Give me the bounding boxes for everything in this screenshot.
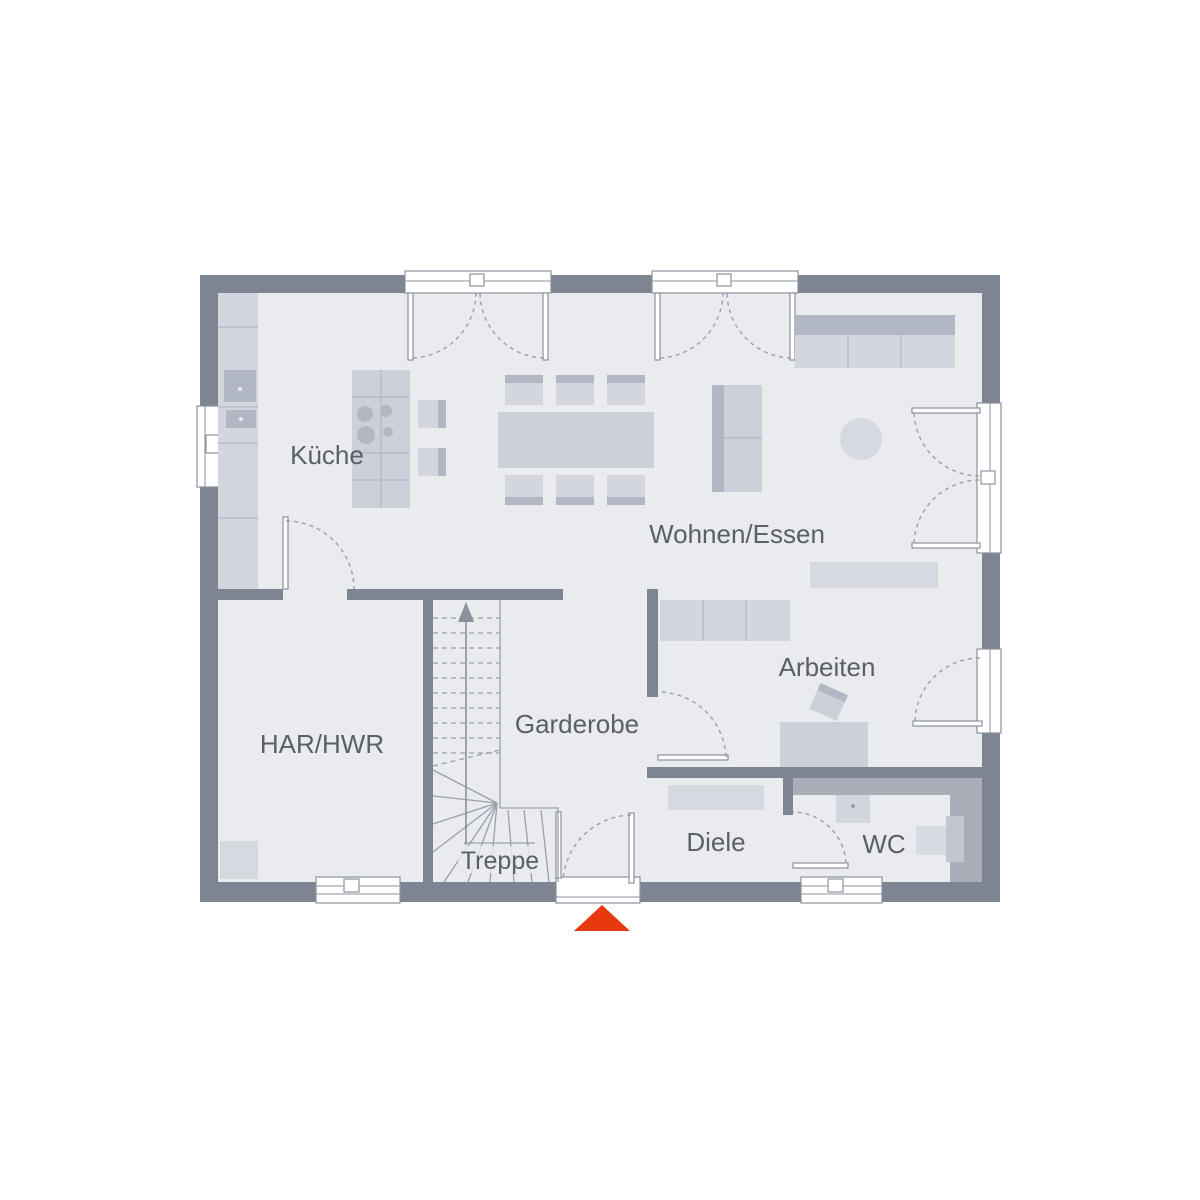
cooktop-burner-icon [357, 406, 373, 422]
wall-har-stairs [423, 600, 433, 884]
appliance-knob [239, 417, 243, 421]
wall-kueche-har [218, 589, 283, 600]
door-leaf [790, 293, 795, 360]
sink-drain [851, 804, 855, 808]
window-diele-bottom [801, 877, 882, 903]
room-label-arbeiten: Arbeiten [779, 652, 876, 682]
dining-chair [556, 375, 594, 405]
building-shell [200, 275, 1000, 902]
dining-chair [505, 475, 543, 505]
door-leaf [629, 813, 634, 883]
dining-chair [607, 375, 645, 405]
room-label-kueche: Küche [290, 440, 364, 470]
cooktop-burner-icon [380, 405, 392, 417]
entrance-marker-icon [574, 905, 630, 931]
door-leaf [912, 408, 980, 413]
desk [780, 722, 868, 767]
door-leaf [793, 863, 848, 868]
wall-diele-wc [783, 778, 793, 815]
room-label-diele: Diele [686, 827, 745, 857]
door-leaf [658, 755, 728, 760]
door-leaf [543, 293, 548, 360]
island-stool [418, 448, 446, 476]
toilet-tank [946, 816, 964, 862]
door-leaf [408, 293, 413, 360]
floor-plan-page: Küche Wohnen/Essen HAR/HWR Garderobe Tre… [0, 0, 1200, 1200]
room-label-garderobe: Garderobe [515, 709, 639, 739]
dining-furniture [498, 375, 654, 505]
floor-plan-drawing: Küche Wohnen/Essen HAR/HWR Garderobe Tre… [0, 0, 1200, 1200]
door-handle-icon [981, 471, 995, 484]
door-leaf [655, 293, 660, 360]
room-label-har-hwr: HAR/HWR [260, 729, 384, 759]
side-table [840, 418, 882, 460]
room-label-wc: WC [862, 829, 905, 859]
door-handle-icon [717, 274, 731, 286]
room-label-treppe: Treppe [461, 847, 539, 875]
door-leaf [912, 543, 980, 548]
window-har-bottom [316, 877, 400, 903]
window-handle-icon [828, 879, 843, 892]
sink-icon [836, 795, 870, 823]
cooktop-burner-icon [383, 427, 393, 437]
door-leaf [283, 517, 288, 589]
toilet-icon [916, 826, 946, 855]
wall-arbeiten-left [647, 589, 658, 697]
window-handle-icon [206, 435, 219, 453]
sofa [795, 315, 955, 368]
shelf-unit [712, 385, 762, 492]
window-kueche-left [197, 406, 221, 487]
oven-knob [238, 387, 242, 391]
dining-chair [607, 475, 645, 505]
window-handle-icon [344, 879, 359, 892]
hall-sideboard [668, 785, 764, 810]
door-threshold [556, 877, 640, 903]
office-shelf [660, 600, 790, 641]
wall-arbeiten-diele [647, 767, 982, 778]
wc-installation-wall-top [793, 778, 982, 795]
dining-chair [556, 475, 594, 505]
island-stool [418, 400, 446, 428]
lowboard [810, 562, 938, 588]
room-label-wohnen-essen: Wohnen/Essen [649, 519, 825, 549]
kitchen-counter [218, 293, 258, 589]
washing-machine-icon [220, 841, 258, 879]
door-leaf [913, 721, 982, 726]
dining-table [498, 412, 654, 468]
door-handle-icon [470, 274, 484, 286]
wall-garderobe-top [347, 589, 563, 600]
dining-chair [505, 375, 543, 405]
oven-icon [224, 370, 256, 402]
